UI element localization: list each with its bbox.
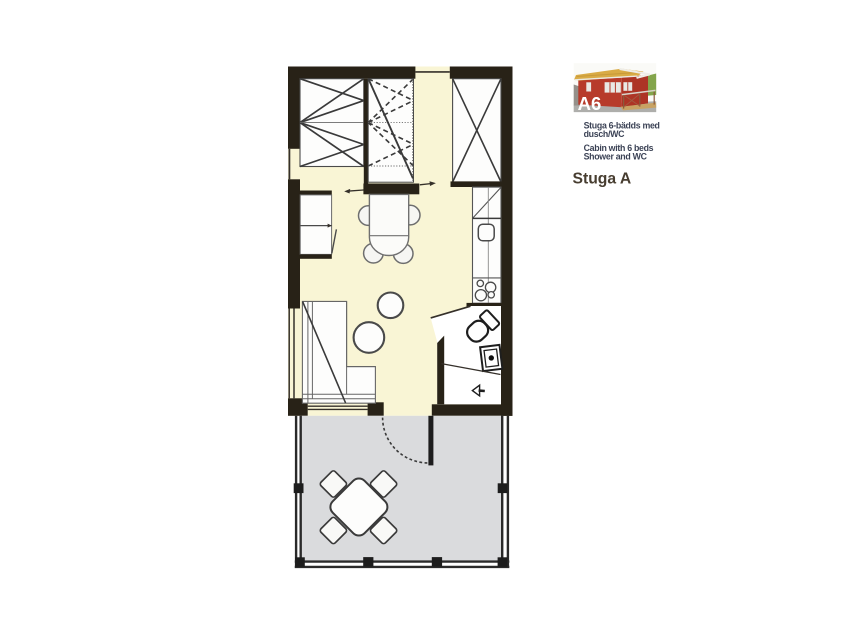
svg-text:Stuga A: Stuga A	[573, 170, 632, 187]
svg-text:Shower and WC: Shower and WC	[584, 151, 648, 161]
svg-text:dusch/WC: dusch/WC	[584, 129, 626, 139]
svg-text:A6: A6	[578, 93, 602, 114]
